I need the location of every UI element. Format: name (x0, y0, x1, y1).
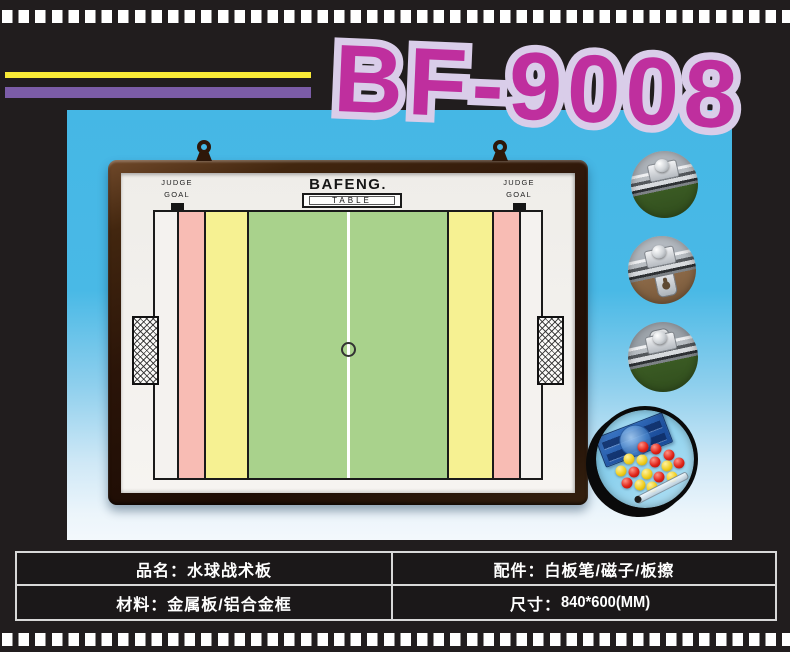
court-stripe-yellow-right (449, 212, 492, 478)
court-stripe-pink-right (492, 212, 519, 478)
magnet-ball (637, 455, 648, 466)
court-diagram (153, 210, 543, 480)
hanging-hook-right-icon (489, 140, 511, 162)
whiteboard-pen-case (596, 412, 673, 468)
yellow-stripe (5, 72, 311, 78)
accessories-photo (596, 410, 694, 508)
mounting-clip-icon (644, 244, 677, 268)
magnet-ball (629, 467, 640, 478)
tactic-board: JUDGE GOAL JUDGE GOAL BAFENG. TABLE (108, 160, 588, 505)
magnet-ball (638, 442, 649, 453)
magnet-ball (622, 478, 633, 489)
magnet-ball (662, 461, 673, 472)
magnet-ball (664, 450, 675, 461)
goal-box-right (537, 316, 564, 385)
purple-stripe (5, 87, 311, 98)
keyhole-hanger-icon (654, 272, 678, 298)
court-stripe-pink-left (177, 212, 204, 478)
spec-label: 尺寸： (510, 591, 561, 615)
spec-value: 白板笔/磁子/板擦 (545, 557, 675, 581)
film-strip-bottom (2, 633, 790, 646)
goal-box-left (132, 316, 159, 385)
spec-material: 材料：金属板/铝合金框 (17, 586, 393, 619)
product-poster: BF-9008 JUDGE GOAL JUDGE GOAL BAFENG. TA… (0, 0, 790, 652)
spec-table: 品名：水球战术板 配件：白板笔/磁子/板擦 材料：金属板/铝合金框 尺寸：840… (15, 551, 777, 621)
spec-value: 金属板/铝合金框 (167, 591, 291, 615)
magnet-ball (616, 466, 627, 477)
detail-photo-accessories (592, 406, 698, 512)
spec-value: 840*600(MM) (561, 594, 650, 612)
table-label: TABLE (309, 196, 395, 205)
magnet-ball (624, 454, 635, 465)
spec-accessories: 配件：白板笔/磁子/板擦 (393, 553, 775, 586)
spec-label: 材料： (116, 591, 167, 615)
spec-label: 配件： (494, 557, 545, 581)
spec-size: 尺寸：840*600(MM) (393, 586, 775, 619)
detail-photo-hanger-down (628, 236, 696, 304)
film-strip-top (2, 10, 790, 23)
spec-value: 水球战术板 (187, 557, 272, 581)
frame-rail-photo (628, 322, 698, 392)
magnet-ball (674, 458, 685, 469)
magnet-ball (642, 469, 653, 480)
spec-label: 品名： (136, 557, 187, 581)
magnet-ball (650, 457, 661, 468)
mounting-clip-icon (646, 159, 679, 183)
court-stripe-yellow-left (204, 212, 247, 478)
magnet-ball (654, 472, 665, 483)
detail-photo-hanger-up (628, 322, 698, 392)
court-center-field (247, 212, 449, 478)
magnet-ball (635, 480, 646, 491)
center-circle (341, 342, 356, 357)
brand-logo: BAFENG. (121, 176, 575, 193)
hanging-hook-left-icon (193, 140, 215, 162)
detail-photo-corner-clip (631, 151, 698, 218)
frame-rail-photo (628, 236, 696, 304)
board-face: JUDGE GOAL JUDGE GOAL BAFENG. TABLE (121, 173, 575, 493)
magnet-ball (651, 444, 662, 455)
spec-product-name: 品名：水球战术板 (17, 553, 393, 586)
model-number: BF-9008 (332, 31, 744, 144)
table-label-box: TABLE (302, 193, 402, 208)
frame-rail-photo (631, 151, 698, 218)
